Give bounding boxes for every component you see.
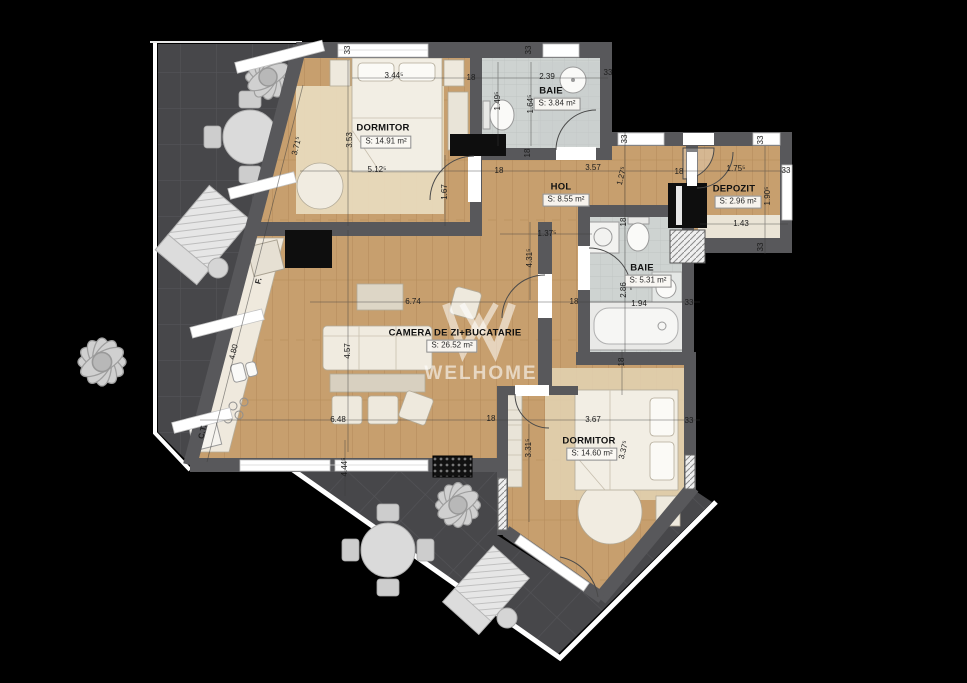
door-depozit [687, 152, 697, 186]
side-table [497, 608, 517, 628]
door-bathroom2 [578, 246, 590, 290]
depozit-shelf [698, 215, 786, 238]
pillow [650, 398, 674, 436]
sink [656, 278, 676, 298]
shaft-hatched [670, 230, 705, 263]
kitchen-tall-cabinet [285, 230, 332, 268]
door-living [538, 274, 552, 318]
wall-hatched [498, 478, 507, 530]
doormat [433, 456, 472, 477]
shaft [668, 183, 707, 228]
round-rug [297, 163, 343, 209]
coffee-table [330, 374, 425, 392]
floor-plan-drawing [0, 0, 967, 683]
toilet-tank [483, 101, 490, 129]
nightstand [444, 60, 464, 86]
door-bathroom1 [556, 147, 596, 160]
sofa [323, 326, 432, 370]
door-bedroom2 [515, 385, 549, 396]
watermark-text: WELHOME [424, 363, 537, 385]
door-bedroom1 [468, 156, 481, 202]
nightstand [330, 60, 350, 86]
toilet [627, 223, 649, 251]
side-table [208, 258, 228, 278]
sideboard [357, 284, 403, 310]
toilet [490, 100, 514, 130]
pillow [650, 442, 674, 480]
wall-hatched [685, 455, 695, 489]
floor-plan: DORMITORS: 14.91 m²BAIES: 3.84 m²HOLS: 8… [0, 0, 967, 683]
entry-door [683, 133, 714, 145]
